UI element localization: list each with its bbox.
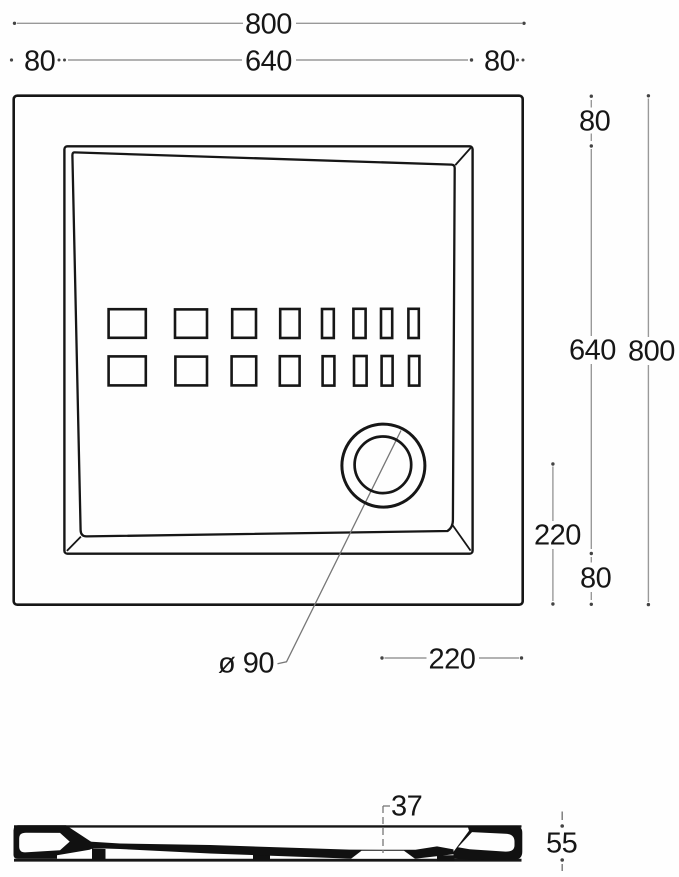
svg-text:80: 80 — [580, 563, 611, 595]
svg-text:37: 37 — [391, 791, 422, 823]
svg-text:ø 90: ø 90 — [218, 648, 274, 680]
svg-text:80: 80 — [484, 46, 515, 78]
svg-text:800: 800 — [628, 336, 675, 368]
svg-text:220: 220 — [429, 644, 476, 676]
svg-text:80: 80 — [579, 106, 610, 138]
svg-text:220: 220 — [534, 520, 581, 552]
svg-text:640: 640 — [245, 46, 292, 78]
svg-text:55: 55 — [546, 828, 577, 860]
svg-text:800: 800 — [245, 9, 292, 41]
svg-text:80: 80 — [24, 46, 55, 78]
svg-text:640: 640 — [569, 335, 616, 367]
